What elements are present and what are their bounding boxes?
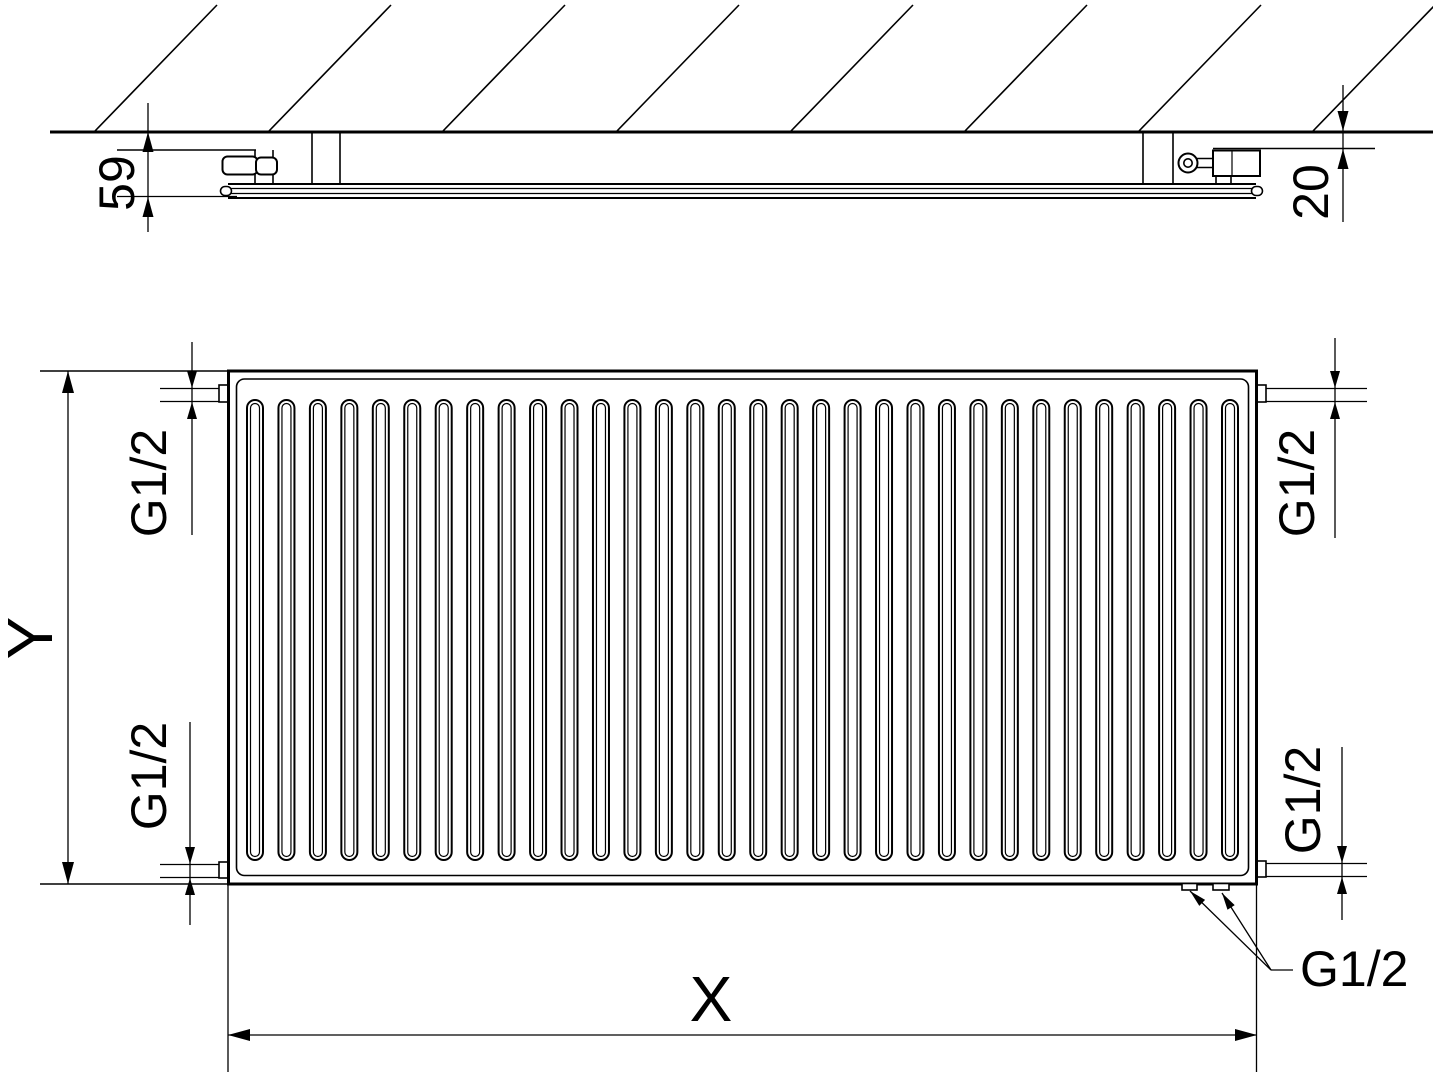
arrow-up-icon (1338, 149, 1349, 169)
arrow-down-icon (62, 862, 74, 884)
hatch-line (1313, 5, 1433, 131)
wall-clearance-value: 20 (1283, 164, 1339, 220)
panel-end-cap-right (1252, 187, 1263, 196)
callout-thread-bottom-center: G1/2 (1190, 891, 1408, 997)
front-view: Y X G1/2 G1/2 (0, 338, 1408, 1072)
dim-thread-top-right: G1/2 (1266, 338, 1367, 538)
hatch-line (443, 5, 565, 131)
arrow-down-icon (187, 371, 197, 388)
wall-hatching (95, 5, 1433, 131)
arrow-up-icon (143, 132, 154, 152)
arrow-up-icon (185, 878, 195, 895)
radiator-panel-top-view (221, 184, 1263, 198)
depth-value: 59 (89, 155, 145, 211)
arrow-down-icon (1330, 371, 1340, 388)
hatch-line (791, 5, 913, 131)
vent-screw-outer (1179, 154, 1198, 173)
wall-bracket-right (1143, 133, 1173, 184)
valve-body (1213, 151, 1260, 177)
thread-label: G1/2 (1269, 429, 1325, 537)
thread-label: G1/2 (121, 429, 177, 537)
hatch-line (95, 5, 217, 131)
hatch-line (1139, 5, 1261, 131)
hatch-line (965, 5, 1087, 131)
stub-bottom-center-2 (1213, 884, 1229, 891)
arrow-down-icon (1338, 111, 1349, 131)
wall-bracket-left (312, 133, 340, 184)
arrow-down-icon (1337, 846, 1347, 863)
hatch-line (617, 5, 739, 131)
height-label: Y (0, 617, 66, 660)
arrow-left-icon (228, 1029, 250, 1041)
dim-thread-bottom-left: G1/2 (121, 722, 219, 925)
arrow-up-icon (1337, 877, 1347, 894)
arrow-down-icon (185, 847, 195, 864)
thread-label: G1/2 (1300, 941, 1408, 997)
union-nut (223, 157, 258, 175)
length-label: X (690, 963, 733, 1035)
panel-end-cap-left (221, 187, 232, 196)
dim-depth: 59 (89, 103, 154, 232)
dim-height: Y (0, 371, 228, 884)
thread-label: G1/2 (1275, 746, 1331, 854)
radiator-outline (229, 371, 1257, 884)
hex-nut (256, 158, 277, 175)
arrow-right-icon (1235, 1029, 1257, 1041)
stub-bottom-center-1 (1182, 884, 1197, 891)
arrow-up-icon (187, 402, 197, 419)
arrow-up-icon (62, 371, 74, 393)
leader-arrow-icon (1222, 893, 1235, 910)
dim-length: X (228, 884, 1257, 1072)
thread-label: G1/2 (121, 722, 177, 830)
top-section-view: 59 20 (50, 5, 1433, 232)
arrow-up-icon (1330, 402, 1340, 419)
hatch-line (269, 5, 391, 131)
radiator-technical-drawing: 59 20 Y (0, 0, 1433, 1073)
dim-thread-bottom-right: G1/2 (1266, 746, 1367, 920)
